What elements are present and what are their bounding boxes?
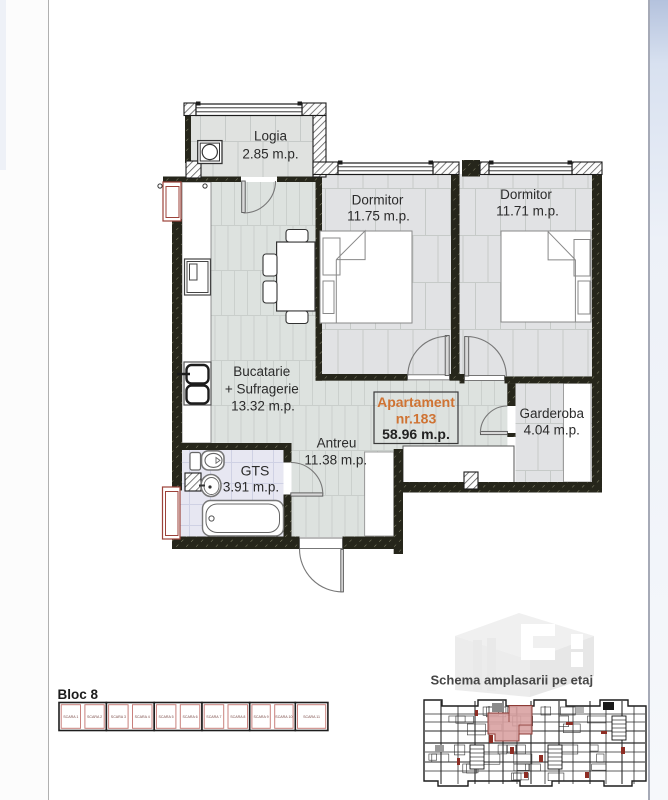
svg-text:11.71 m.p.: 11.71 m.p. [496, 204, 559, 219]
svg-text:SCARA 7: SCARA 7 [206, 715, 221, 719]
svg-text:Apartament: Apartament [377, 394, 455, 410]
svg-text:Garderoba: Garderoba [520, 406, 585, 421]
svg-text:nr.183: nr.183 [396, 411, 437, 427]
svg-text:11.38 m.p.: 11.38 m.p. [304, 453, 367, 468]
svg-text:SCARA 3: SCARA 3 [111, 715, 126, 719]
svg-text:3.91 m.p.: 3.91 m.p. [223, 480, 279, 495]
svg-text:Antreu: Antreu [317, 436, 357, 451]
svg-text:Dormitor: Dormitor [352, 193, 404, 208]
svg-text:GTS: GTS [241, 463, 270, 479]
svg-text:13.32 m.p.: 13.32 m.p. [231, 399, 295, 414]
svg-text:Bloc 8: Bloc 8 [58, 687, 99, 702]
svg-text:SCARA 1: SCARA 1 [63, 715, 78, 719]
svg-text:SCARA 4: SCARA 4 [135, 715, 150, 719]
svg-text:SCARA 5: SCARA 5 [159, 715, 174, 719]
svg-text:SCARA 9: SCARA 9 [254, 715, 269, 719]
svg-text:SCARA 6: SCARA 6 [183, 715, 198, 719]
svg-text:SCARA 2: SCARA 2 [87, 715, 102, 719]
svg-text:58.96 m.p.: 58.96 m.p. [382, 426, 450, 442]
svg-text:SCARA 8: SCARA 8 [230, 715, 245, 719]
svg-text:+ Sufragerie: + Sufragerie [225, 382, 299, 397]
svg-text:SCARA 10: SCARA 10 [275, 715, 292, 719]
svg-text:SCARA 11: SCARA 11 [303, 715, 320, 719]
svg-text:Logia: Logia [254, 129, 288, 144]
svg-text:2.85 m.p.: 2.85 m.p. [242, 147, 298, 162]
svg-text:4.04 m.p.: 4.04 m.p. [524, 423, 580, 438]
svg-text:11.75 m.p.: 11.75 m.p. [347, 209, 410, 224]
svg-text:Schema amplasarii pe etaj: Schema amplasarii pe etaj [431, 673, 594, 688]
svg-text:Dormitor: Dormitor [500, 187, 552, 202]
svg-text:Bucatarie: Bucatarie [233, 364, 290, 379]
